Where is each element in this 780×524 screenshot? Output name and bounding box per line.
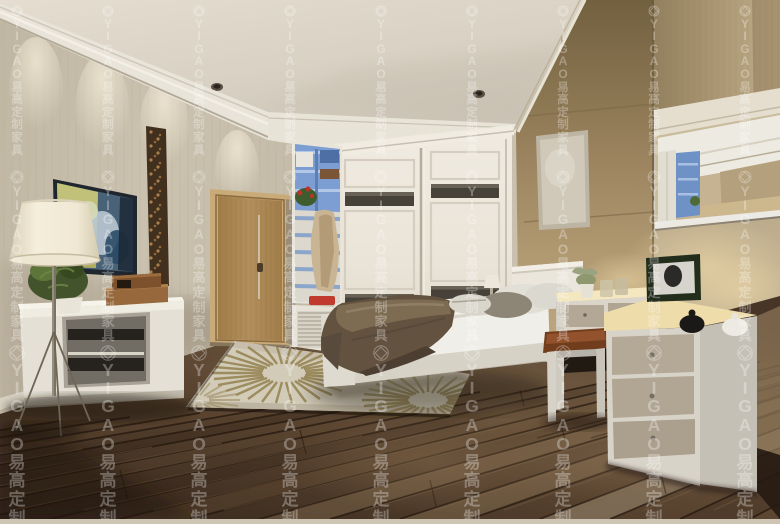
svg-text:G: G xyxy=(740,212,751,227)
svg-text:O: O xyxy=(376,67,385,81)
svg-text:I: I xyxy=(561,29,564,43)
svg-text:具: 具 xyxy=(466,144,478,157)
svg-text:Y: Y xyxy=(375,360,387,380)
svg-text:易: 易 xyxy=(648,81,660,94)
svg-text:定: 定 xyxy=(646,489,663,509)
svg-text:A: A xyxy=(377,54,386,68)
svg-text:A: A xyxy=(195,54,204,68)
svg-text:I: I xyxy=(197,29,200,43)
svg-text:I: I xyxy=(288,29,291,43)
svg-text:G: G xyxy=(12,212,23,227)
svg-text:高: 高 xyxy=(375,92,387,106)
svg-text:制: 制 xyxy=(737,508,754,519)
svg-text:G: G xyxy=(376,212,387,227)
svg-text:定: 定 xyxy=(555,285,569,300)
svg-text:I: I xyxy=(106,29,109,43)
svg-text:具: 具 xyxy=(465,328,478,343)
svg-text:易: 易 xyxy=(739,81,751,94)
svg-text:G: G xyxy=(467,212,478,227)
svg-text:Y: Y xyxy=(284,360,296,380)
svg-text:O: O xyxy=(740,67,749,81)
svg-text:高: 高 xyxy=(102,92,114,106)
svg-text:高: 高 xyxy=(284,92,296,106)
svg-text:制: 制 xyxy=(739,117,751,131)
svg-text:具: 具 xyxy=(193,144,205,157)
svg-text:具: 具 xyxy=(647,328,660,343)
svg-text:具: 具 xyxy=(283,328,296,343)
svg-text:制: 制 xyxy=(101,300,114,315)
svg-text:高: 高 xyxy=(193,92,205,106)
svg-text:定: 定 xyxy=(557,105,569,119)
svg-text:O: O xyxy=(101,434,115,454)
svg-text:A: A xyxy=(558,227,568,242)
svg-text:易: 易 xyxy=(556,256,569,271)
svg-text:制: 制 xyxy=(282,508,299,519)
svg-text:易: 易 xyxy=(191,453,208,472)
svg-text:Y: Y xyxy=(649,184,658,199)
svg-text:制: 制 xyxy=(466,117,478,131)
svg-text:定: 定 xyxy=(739,105,751,119)
svg-text:高: 高 xyxy=(10,270,23,285)
svg-text:O: O xyxy=(465,434,479,454)
svg-text:家: 家 xyxy=(374,314,388,329)
svg-text:制: 制 xyxy=(10,300,23,315)
svg-text:定: 定 xyxy=(9,285,23,300)
svg-text:制: 制 xyxy=(11,117,23,131)
svg-text:定: 定 xyxy=(284,105,296,119)
svg-text:A: A xyxy=(466,415,479,435)
svg-text:高: 高 xyxy=(373,470,390,490)
svg-text:易: 易 xyxy=(465,256,478,271)
svg-text:家: 家 xyxy=(465,314,479,329)
svg-text:I: I xyxy=(379,378,384,398)
svg-text:高: 高 xyxy=(9,470,26,490)
svg-text:具: 具 xyxy=(739,144,751,157)
svg-text:A: A xyxy=(559,54,568,68)
svg-text:具: 具 xyxy=(284,144,296,157)
svg-text:具: 具 xyxy=(557,144,569,157)
svg-text:高: 高 xyxy=(648,92,660,106)
svg-text:高: 高 xyxy=(556,270,569,285)
svg-text:G: G xyxy=(285,212,296,227)
svg-text:高: 高 xyxy=(737,470,754,490)
svg-text:I: I xyxy=(652,378,657,398)
svg-text:A: A xyxy=(376,227,386,242)
svg-text:O: O xyxy=(647,434,661,454)
svg-text:I: I xyxy=(470,198,474,213)
svg-text:定: 定 xyxy=(648,105,660,119)
svg-text:G: G xyxy=(374,396,388,416)
svg-text:I: I xyxy=(288,198,292,213)
svg-text:高: 高 xyxy=(192,270,205,285)
svg-text:O: O xyxy=(12,242,23,257)
svg-text:高: 高 xyxy=(11,92,23,106)
svg-text:具: 具 xyxy=(556,328,569,343)
svg-text:G: G xyxy=(738,396,752,416)
svg-text:高: 高 xyxy=(555,470,572,490)
svg-text:G: G xyxy=(556,396,570,416)
svg-text:I: I xyxy=(379,29,382,43)
svg-text:A: A xyxy=(375,415,388,435)
svg-text:I: I xyxy=(561,378,566,398)
svg-text:易: 易 xyxy=(375,81,387,94)
svg-text:易: 易 xyxy=(374,256,387,271)
svg-text:家: 家 xyxy=(648,130,660,144)
svg-text:易: 易 xyxy=(11,81,23,94)
svg-text:制: 制 xyxy=(191,508,208,519)
svg-text:Y: Y xyxy=(194,184,203,199)
svg-text:高: 高 xyxy=(557,92,569,106)
svg-text:易: 易 xyxy=(100,453,117,472)
svg-text:家: 家 xyxy=(193,130,205,144)
svg-text:制: 制 xyxy=(464,508,481,519)
svg-text:A: A xyxy=(284,415,297,435)
svg-text:A: A xyxy=(12,227,22,242)
svg-text:易: 易 xyxy=(282,453,299,472)
svg-text:制: 制 xyxy=(646,508,663,519)
svg-text:G: G xyxy=(10,396,24,416)
svg-text:定: 定 xyxy=(737,285,751,300)
svg-text:O: O xyxy=(374,434,388,454)
svg-text:家: 家 xyxy=(102,130,114,144)
svg-text:Y: Y xyxy=(467,184,476,199)
svg-text:家: 家 xyxy=(284,130,296,144)
svg-text:Y: Y xyxy=(739,360,751,380)
svg-text:易: 易 xyxy=(737,453,754,472)
svg-text:A: A xyxy=(285,227,295,242)
svg-text:定: 定 xyxy=(193,105,205,119)
svg-text:易: 易 xyxy=(102,81,114,94)
svg-text:O: O xyxy=(649,242,660,257)
svg-text:A: A xyxy=(194,227,204,242)
svg-text:I: I xyxy=(470,378,475,398)
svg-text:易: 易 xyxy=(646,453,663,472)
svg-text:制: 制 xyxy=(555,508,572,519)
svg-text:制: 制 xyxy=(556,300,569,315)
svg-text:O: O xyxy=(649,67,658,81)
svg-text:高: 高 xyxy=(466,92,478,106)
svg-text:Y: Y xyxy=(648,360,660,380)
svg-text:A: A xyxy=(741,54,750,68)
svg-text:高: 高 xyxy=(465,270,478,285)
svg-text:Y: Y xyxy=(466,360,478,380)
svg-text:Y: Y xyxy=(558,184,567,199)
svg-text:I: I xyxy=(106,378,111,398)
svg-text:I: I xyxy=(379,198,383,213)
svg-text:家: 家 xyxy=(10,314,24,329)
svg-text:A: A xyxy=(739,415,752,435)
svg-text:具: 具 xyxy=(101,328,114,343)
svg-text:A: A xyxy=(740,227,750,242)
svg-text:家: 家 xyxy=(466,130,478,144)
svg-text:具: 具 xyxy=(648,144,660,157)
svg-text:家: 家 xyxy=(739,130,751,144)
svg-text:定: 定 xyxy=(646,285,660,300)
svg-text:Y: Y xyxy=(11,360,23,380)
svg-text:O: O xyxy=(283,434,297,454)
svg-text:A: A xyxy=(648,415,661,435)
svg-text:Y: Y xyxy=(557,360,569,380)
svg-text:O: O xyxy=(194,67,203,81)
svg-text:定: 定 xyxy=(282,489,299,509)
svg-text:A: A xyxy=(193,415,206,435)
svg-text:A: A xyxy=(13,54,22,68)
svg-text:高: 高 xyxy=(739,92,751,106)
svg-text:A: A xyxy=(650,54,659,68)
svg-text:高: 高 xyxy=(282,470,299,490)
svg-text:O: O xyxy=(103,242,114,257)
svg-text:制: 制 xyxy=(647,300,660,315)
svg-text:A: A xyxy=(103,227,113,242)
svg-text:I: I xyxy=(15,378,20,398)
svg-text:I: I xyxy=(197,198,201,213)
svg-text:I: I xyxy=(652,198,656,213)
svg-text:易: 易 xyxy=(647,256,660,271)
svg-text:定: 定 xyxy=(373,285,387,300)
svg-text:O: O xyxy=(467,242,478,257)
svg-text:O: O xyxy=(192,434,206,454)
svg-text:定: 定 xyxy=(466,105,478,119)
svg-text:易: 易 xyxy=(101,256,114,271)
svg-text:Y: Y xyxy=(285,184,294,199)
svg-text:高: 高 xyxy=(464,470,481,490)
svg-text:I: I xyxy=(743,29,746,43)
svg-text:A: A xyxy=(11,415,24,435)
svg-text:G: G xyxy=(647,396,661,416)
svg-text:Y: Y xyxy=(102,360,114,380)
svg-text:定: 定 xyxy=(555,489,572,509)
svg-text:I: I xyxy=(15,29,18,43)
svg-text:制: 制 xyxy=(102,117,114,131)
svg-text:高: 高 xyxy=(101,270,114,285)
svg-text:G: G xyxy=(192,396,206,416)
svg-text:定: 定 xyxy=(102,105,114,119)
svg-text:定: 定 xyxy=(375,105,387,119)
svg-text:制: 制 xyxy=(284,117,296,131)
svg-text:家: 家 xyxy=(283,314,297,329)
svg-text:制: 制 xyxy=(374,300,387,315)
svg-text:I: I xyxy=(470,29,473,43)
svg-text:I: I xyxy=(288,378,293,398)
svg-text:O: O xyxy=(285,67,294,81)
svg-text:定: 定 xyxy=(373,489,390,509)
svg-text:定: 定 xyxy=(282,285,296,300)
svg-text:具: 具 xyxy=(102,144,114,157)
svg-text:易: 易 xyxy=(373,453,390,472)
svg-text:易: 易 xyxy=(557,81,569,94)
svg-text:G: G xyxy=(649,212,660,227)
svg-text:A: A xyxy=(102,415,115,435)
svg-text:制: 制 xyxy=(648,117,660,131)
svg-text:高: 高 xyxy=(738,270,751,285)
svg-text:G: G xyxy=(101,396,115,416)
svg-text:Y: Y xyxy=(193,360,205,380)
svg-text:I: I xyxy=(743,378,748,398)
svg-text:家: 家 xyxy=(647,314,661,329)
svg-text:高: 高 xyxy=(100,470,117,490)
svg-text:定: 定 xyxy=(191,285,205,300)
svg-text:具: 具 xyxy=(375,144,387,157)
svg-text:定: 定 xyxy=(464,489,481,509)
svg-text:具: 具 xyxy=(738,328,751,343)
svg-text:定: 定 xyxy=(100,489,117,509)
svg-text:具: 具 xyxy=(10,328,23,343)
svg-text:O: O xyxy=(558,67,567,81)
svg-text:家: 家 xyxy=(556,314,570,329)
svg-text:G: G xyxy=(465,396,479,416)
svg-text:高: 高 xyxy=(646,470,663,490)
svg-text:易: 易 xyxy=(9,453,26,472)
svg-text:O: O xyxy=(738,434,752,454)
svg-text:O: O xyxy=(740,242,751,257)
svg-text:定: 定 xyxy=(11,105,23,119)
svg-text:家: 家 xyxy=(192,314,206,329)
svg-text:易: 易 xyxy=(555,453,572,472)
svg-text:制: 制 xyxy=(100,508,117,519)
svg-text:易: 易 xyxy=(192,256,205,271)
svg-text:O: O xyxy=(103,67,112,81)
svg-text:Y: Y xyxy=(103,184,112,199)
svg-text:易: 易 xyxy=(193,81,205,94)
svg-text:制: 制 xyxy=(283,300,296,315)
svg-text:O: O xyxy=(285,242,296,257)
svg-text:G: G xyxy=(103,212,114,227)
svg-text:易: 易 xyxy=(466,81,478,94)
svg-text:家: 家 xyxy=(557,130,569,144)
svg-text:制: 制 xyxy=(375,117,387,131)
svg-text:I: I xyxy=(15,198,19,213)
svg-text:高: 高 xyxy=(374,270,387,285)
svg-text:Y: Y xyxy=(12,184,21,199)
svg-text:O: O xyxy=(194,242,205,257)
svg-text:A: A xyxy=(468,54,477,68)
svg-text:I: I xyxy=(652,29,655,43)
svg-text:A: A xyxy=(649,227,659,242)
svg-text:具: 具 xyxy=(192,328,205,343)
svg-text:O: O xyxy=(376,242,387,257)
svg-text:家: 家 xyxy=(375,130,387,144)
svg-text:制: 制 xyxy=(193,117,205,131)
svg-text:Y: Y xyxy=(376,184,385,199)
svg-text:Y: Y xyxy=(740,184,749,199)
svg-text:O: O xyxy=(467,67,476,81)
svg-text:制: 制 xyxy=(465,300,478,315)
svg-text:制: 制 xyxy=(192,300,205,315)
svg-text:定: 定 xyxy=(191,489,208,509)
svg-text:高: 高 xyxy=(647,270,660,285)
svg-text:高: 高 xyxy=(191,470,208,490)
svg-text:I: I xyxy=(197,378,202,398)
svg-text:制: 制 xyxy=(9,508,26,519)
svg-text:具: 具 xyxy=(374,328,387,343)
svg-text:易: 易 xyxy=(10,256,23,271)
svg-text:易: 易 xyxy=(283,256,296,271)
svg-text:定: 定 xyxy=(100,285,114,300)
svg-text:O: O xyxy=(10,434,24,454)
svg-text:O: O xyxy=(558,242,569,257)
svg-text:具: 具 xyxy=(11,144,23,157)
svg-text:A: A xyxy=(467,227,477,242)
svg-text:O: O xyxy=(556,434,570,454)
svg-text:O: O xyxy=(12,67,21,81)
svg-text:定: 定 xyxy=(737,489,754,509)
svg-text:I: I xyxy=(743,198,747,213)
svg-text:I: I xyxy=(106,198,110,213)
svg-text:制: 制 xyxy=(557,117,569,131)
svg-text:易: 易 xyxy=(284,81,296,94)
svg-text:制: 制 xyxy=(373,508,390,519)
svg-text:I: I xyxy=(561,198,565,213)
svg-text:高: 高 xyxy=(283,270,296,285)
svg-text:易: 易 xyxy=(738,256,751,271)
svg-text:家: 家 xyxy=(11,130,23,144)
svg-text:家: 家 xyxy=(101,314,115,329)
svg-text:A: A xyxy=(104,54,113,68)
svg-text:定: 定 xyxy=(9,489,26,509)
svg-text:定: 定 xyxy=(464,285,478,300)
svg-text:G: G xyxy=(558,212,569,227)
svg-text:制: 制 xyxy=(738,300,751,315)
svg-text:G: G xyxy=(194,212,205,227)
svg-text:易: 易 xyxy=(464,453,481,472)
svg-text:A: A xyxy=(286,54,295,68)
svg-text:家: 家 xyxy=(738,314,752,329)
svg-text:G: G xyxy=(283,396,297,416)
svg-text:A: A xyxy=(557,415,570,435)
